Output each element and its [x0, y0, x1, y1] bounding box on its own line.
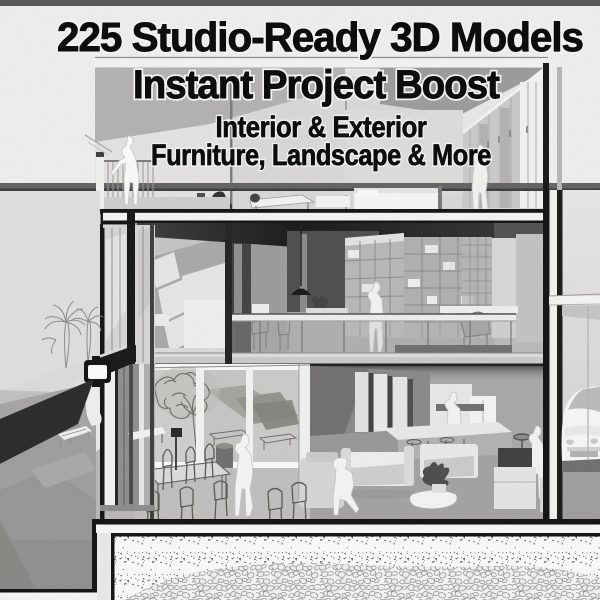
svg-text:225 Studio-Ready 3D Models: 225 Studio-Ready 3D Models: [57, 14, 583, 60]
svg-text:Instant Project Boost: Instant Project Boost: [133, 63, 500, 107]
svg-text:Furniture, Landscape & More: Furniture, Landscape & More: [151, 139, 491, 172]
